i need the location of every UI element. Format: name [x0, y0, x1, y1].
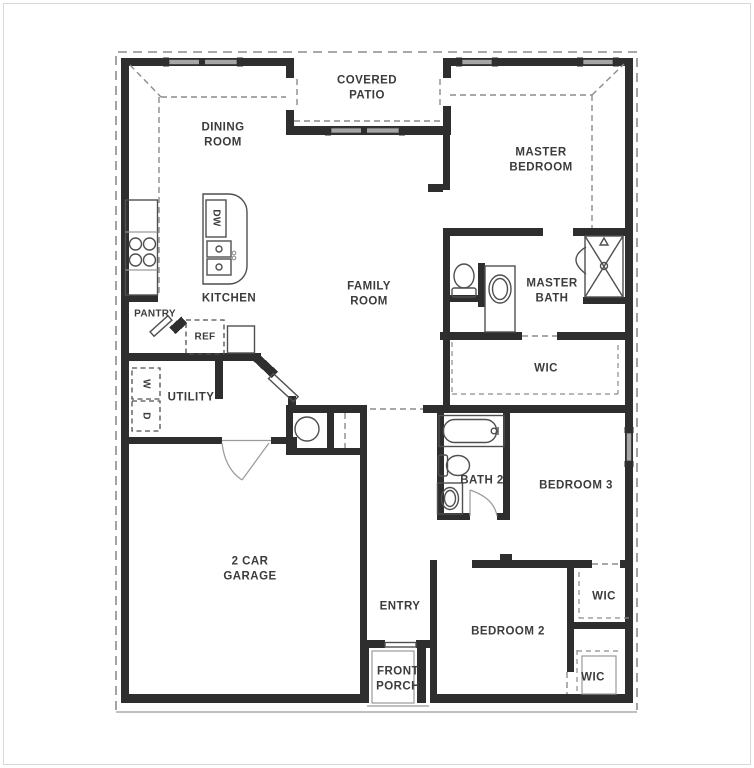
room-label-bath2: BATH 2 [460, 473, 503, 488]
kitchen-island [203, 194, 247, 284]
room-label-wic-bedroom3: WIC [592, 589, 616, 604]
room-label-master-bath: MASTER BATH [526, 277, 577, 308]
shower-icon [576, 236, 623, 297]
closet-shelf-dashes [452, 342, 630, 694]
appliance-label-ref: REF [195, 330, 216, 343]
room-label-family-room: FAMILY ROOM [347, 280, 391, 311]
appliance-label-washer: W [139, 379, 152, 389]
bathtub-icon [439, 416, 504, 447]
room-label-pantry: PANTRY [134, 307, 176, 320]
floor-plan: DINING ROOM COVERED PATIO MASTER BEDROOM… [0, 0, 754, 768]
appliance-label-dw: DW [209, 209, 222, 226]
room-label-utility: UTILITY [168, 390, 215, 405]
front-door-icon [385, 643, 416, 648]
room-label-bedroom3: BEDROOM 3 [539, 478, 613, 493]
cooktop-icon [126, 200, 158, 295]
room-label-master-bedroom: MASTER BEDROOM [509, 146, 572, 177]
room-label-bedroom2: BEDROOM 2 [471, 624, 545, 639]
room-label-garage: 2 CAR GARAGE [223, 555, 276, 586]
island-sink-icon [207, 241, 236, 275]
room-label-dining-room: DINING ROOM [201, 121, 244, 152]
master-toilet-icon [452, 264, 476, 297]
bath2-door-icon [470, 490, 497, 516]
garage-entry-door-icon [222, 441, 271, 481]
interior-walls [121, 126, 633, 703]
kitchen-counter [228, 326, 255, 353]
room-label-wic-bedroom2: WIC [581, 670, 605, 685]
room-label-covered-patio: COVERED PATIO [337, 74, 397, 105]
room-label-front-porch: FRONT PORCH [376, 665, 420, 696]
room-label-master-wic: WIC [534, 361, 558, 376]
water-heater-icon [295, 417, 319, 441]
floor-plan-linework [0, 0, 754, 768]
appliance-label-dryer: D [139, 412, 152, 420]
master-vanity-sink-icon [485, 266, 515, 332]
room-label-kitchen: KITCHEN [202, 291, 256, 306]
room-label-entry: ENTRY [380, 599, 421, 614]
